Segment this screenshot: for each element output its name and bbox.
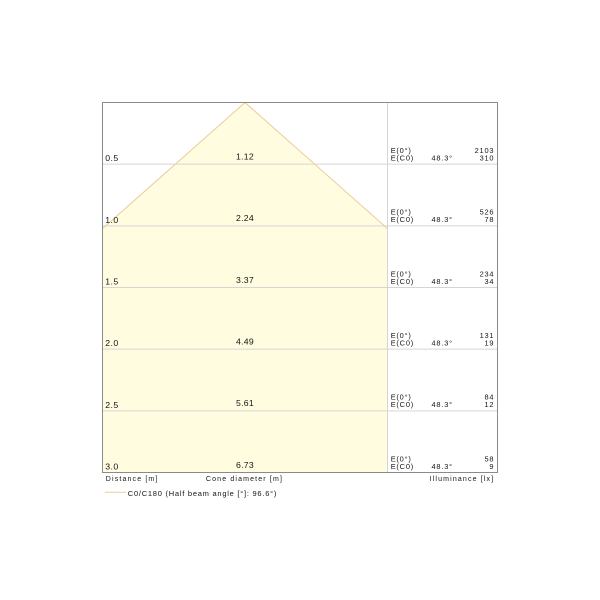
svg-text:E(C0): E(C0): [391, 154, 414, 163]
svg-text:6.73: 6.73: [236, 460, 254, 470]
svg-text:5.61: 5.61: [236, 398, 254, 408]
svg-text:2.0: 2.0: [105, 338, 118, 348]
svg-text:48.3°: 48.3°: [432, 462, 453, 471]
svg-text:48.3°: 48.3°: [432, 277, 453, 286]
svg-text:3.37: 3.37: [236, 275, 254, 285]
svg-text:19: 19: [484, 339, 494, 348]
svg-text:310: 310: [480, 154, 495, 163]
svg-text:48.3°: 48.3°: [432, 400, 453, 409]
svg-text:3.0: 3.0: [105, 462, 118, 472]
svg-text:E(C0): E(C0): [391, 462, 414, 471]
svg-text:48.3°: 48.3°: [432, 154, 453, 163]
svg-text:9: 9: [489, 462, 494, 471]
svg-text:34: 34: [484, 277, 494, 286]
svg-text:1.5: 1.5: [105, 277, 118, 287]
svg-text:48.3°: 48.3°: [432, 339, 453, 348]
svg-text:2.24: 2.24: [236, 213, 254, 223]
svg-text:12: 12: [484, 400, 494, 409]
svg-text:E(C0): E(C0): [391, 339, 414, 348]
svg-text:48.3°: 48.3°: [432, 215, 453, 224]
svg-text:0.5: 0.5: [105, 153, 118, 163]
svg-text:E(C0): E(C0): [391, 277, 414, 286]
svg-text:Cone diameter [m]: Cone diameter [m]: [206, 476, 283, 483]
svg-text:4.49: 4.49: [236, 337, 254, 347]
svg-text:1.12: 1.12: [236, 152, 254, 162]
svg-text:1.0: 1.0: [105, 215, 118, 225]
svg-text:Illuminance [lx]: Illuminance [lx]: [430, 476, 495, 483]
svg-text:C0/C180 (Half beam angle [°]:: C0/C180 (Half beam angle [°]: 96.6°): [128, 489, 277, 498]
svg-text:2.5: 2.5: [105, 400, 118, 410]
svg-text:78: 78: [484, 215, 494, 224]
svg-text:Distance [m]: Distance [m]: [106, 476, 159, 483]
svg-text:E(C0): E(C0): [391, 215, 414, 224]
svg-text:E(C0): E(C0): [391, 400, 414, 409]
